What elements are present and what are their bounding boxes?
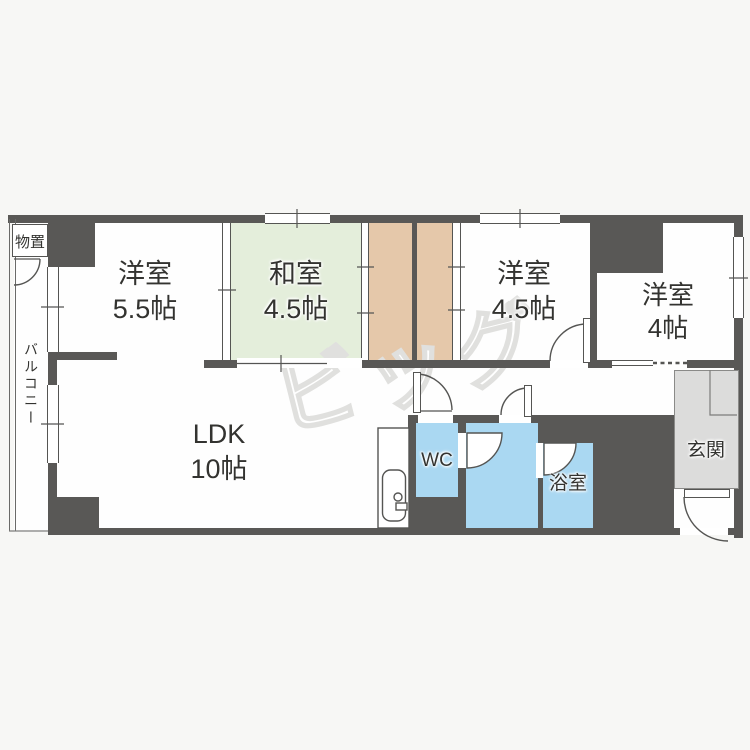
yoshitsu4-size: 4帖 xyxy=(590,312,746,345)
label-washitsu: 和室 4.5帖 xyxy=(216,257,376,326)
yoshitsu55-name: 洋室 xyxy=(65,257,225,292)
kitchen-faucet xyxy=(394,493,402,501)
label-genkan: 玄関 xyxy=(676,439,736,463)
yoshitsu4-name: 洋室 xyxy=(590,279,746,312)
genkan-name: 玄関 xyxy=(676,439,736,463)
label-yoshitsu55: 洋室 5.5帖 xyxy=(65,257,225,326)
label-bath: 浴室 xyxy=(540,472,596,496)
washroom-door-leaf xyxy=(524,385,532,417)
label-wc: WC xyxy=(416,449,458,473)
ldk-size: 10帖 xyxy=(139,452,299,487)
front-door-arc xyxy=(684,497,728,541)
wc-door-leaf xyxy=(413,372,421,413)
kitchen-faucet-handle xyxy=(396,503,407,510)
yoshitsu45-door-arc xyxy=(550,324,587,361)
washroom-inner-door xyxy=(467,433,502,468)
label-balcony: バルコニー xyxy=(21,342,41,472)
bath-door xyxy=(544,443,576,475)
floor-plan: ビッグ 物置 xyxy=(0,0,750,750)
monooki-door-arc xyxy=(14,259,40,285)
yoshitsu45-name: 洋室 xyxy=(444,257,604,292)
wc-name: WC xyxy=(416,449,458,473)
label-yoshitsu4: 洋室 4帖 xyxy=(590,279,746,346)
bath-name: 浴室 xyxy=(540,472,596,496)
yoshitsu45-size: 4.5帖 xyxy=(444,292,604,327)
washitsu-name: 和室 xyxy=(216,257,376,292)
ldk-name: LDK xyxy=(139,417,299,452)
front-door-leaf xyxy=(684,489,730,498)
shoe-cabinet xyxy=(710,370,737,415)
linework-layer xyxy=(0,0,750,750)
label-yoshitsu45: 洋室 4.5帖 xyxy=(444,257,604,326)
yoshitsu55-size: 5.5帖 xyxy=(65,292,225,327)
washitsu-size: 4.5帖 xyxy=(216,292,376,327)
wc-door-arc xyxy=(419,374,452,410)
label-ldk: LDK 10帖 xyxy=(139,417,299,486)
